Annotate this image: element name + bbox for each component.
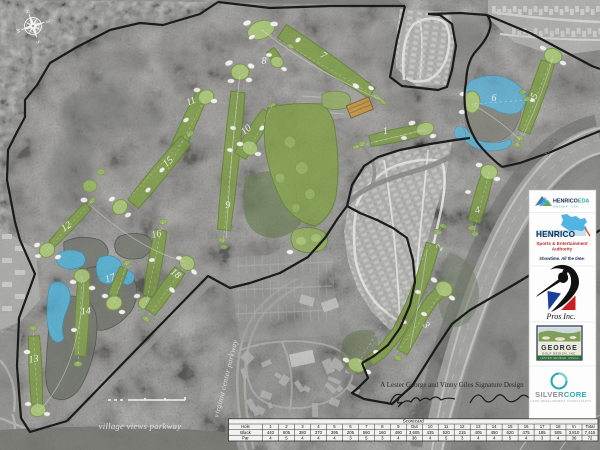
- svg-text:7,415: 7,415: [585, 430, 596, 435]
- svg-text:395: 395: [331, 430, 339, 435]
- svg-text:435: 435: [427, 430, 435, 435]
- svg-text:16: 16: [524, 424, 529, 429]
- svg-text:215: 215: [459, 430, 467, 435]
- svg-text:36: 36: [412, 435, 417, 440]
- svg-text:Out: Out: [411, 424, 419, 429]
- svg-text:Authority: Authority: [552, 247, 573, 252]
- svg-text:450: 450: [491, 430, 499, 435]
- svg-text:18: 18: [556, 424, 561, 429]
- svg-text:LESTER GEORGE, ASGCA: LESTER GEORGE, ASGCA: [540, 356, 579, 360]
- svg-text:Par: Par: [242, 435, 249, 440]
- svg-text:3,605: 3,605: [409, 430, 420, 435]
- svg-text:490: 490: [395, 430, 403, 435]
- svg-text:405: 405: [475, 430, 483, 435]
- svg-text:36: 36: [572, 435, 577, 440]
- svg-text:HENRICO: HENRICO: [536, 230, 576, 239]
- svg-text:Showtime. All the time.: Showtime. All the time.: [539, 256, 585, 261]
- svg-text:Pros Inc.: Pros Inc.: [545, 312, 575, 321]
- svg-text:620: 620: [507, 430, 515, 435]
- svg-text:475: 475: [523, 430, 531, 435]
- svg-text:160: 160: [379, 430, 387, 435]
- svg-text:Black: Black: [240, 430, 251, 435]
- svg-text:Hole: Hole: [241, 424, 250, 429]
- svg-text:3,810: 3,810: [569, 430, 580, 435]
- svg-text:380: 380: [299, 430, 307, 435]
- svg-text:72: 72: [588, 435, 593, 440]
- svg-text:15: 15: [508, 424, 513, 429]
- svg-text:185: 185: [539, 430, 547, 435]
- svg-text:Total: Total: [585, 424, 594, 429]
- svg-text:520: 520: [443, 430, 451, 435]
- svg-text:17: 17: [540, 424, 545, 429]
- svg-text:HENRICOEDA: HENRICOEDA: [553, 199, 589, 205]
- svg-text:11: 11: [444, 424, 449, 429]
- svg-text:village views parkway: village views parkway: [99, 421, 182, 431]
- svg-text:14: 14: [492, 424, 497, 429]
- svg-text:SILVERCORE: SILVERCORE: [535, 390, 587, 399]
- svg-text:VIRGINIA · USA: VIRGINIA · USA: [553, 206, 578, 209]
- svg-text:12: 12: [460, 424, 465, 429]
- svg-text:10: 10: [428, 424, 433, 429]
- svg-text:605: 605: [283, 430, 291, 435]
- svg-text:In: In: [572, 424, 576, 429]
- svg-text:GOLF DESIGN, INC.: GOLF DESIGN, INC.: [542, 352, 577, 356]
- svg-text:440: 440: [267, 430, 275, 435]
- svg-text:Sports & Entertainment: Sports & Entertainment: [536, 241, 588, 246]
- svg-text:505: 505: [555, 430, 563, 435]
- svg-text:205: 205: [347, 430, 355, 435]
- svg-text:Scorecard: Scorecard: [403, 419, 424, 424]
- svg-text:13: 13: [476, 424, 481, 429]
- svg-text:LAND DEVELOPMENT CONSULTANTS: LAND DEVELOPMENT CONSULTANTS: [531, 399, 592, 403]
- svg-text:560: 560: [363, 430, 371, 435]
- svg-text:A Lester George and Vinny Gile: A Lester George and Vinny Giles Signatur…: [380, 381, 524, 389]
- svg-text:370: 370: [315, 430, 323, 435]
